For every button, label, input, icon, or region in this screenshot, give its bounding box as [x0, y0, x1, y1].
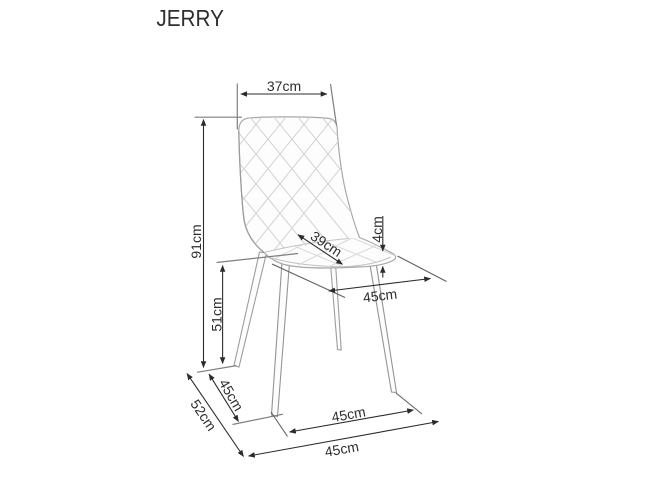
svg-text:4cm: 4cm: [369, 216, 385, 242]
svg-text:JERRY: JERRY: [156, 5, 224, 31]
svg-text:37cm: 37cm: [267, 78, 301, 94]
svg-text:91cm: 91cm: [188, 224, 204, 258]
svg-text:51cm: 51cm: [208, 297, 224, 331]
